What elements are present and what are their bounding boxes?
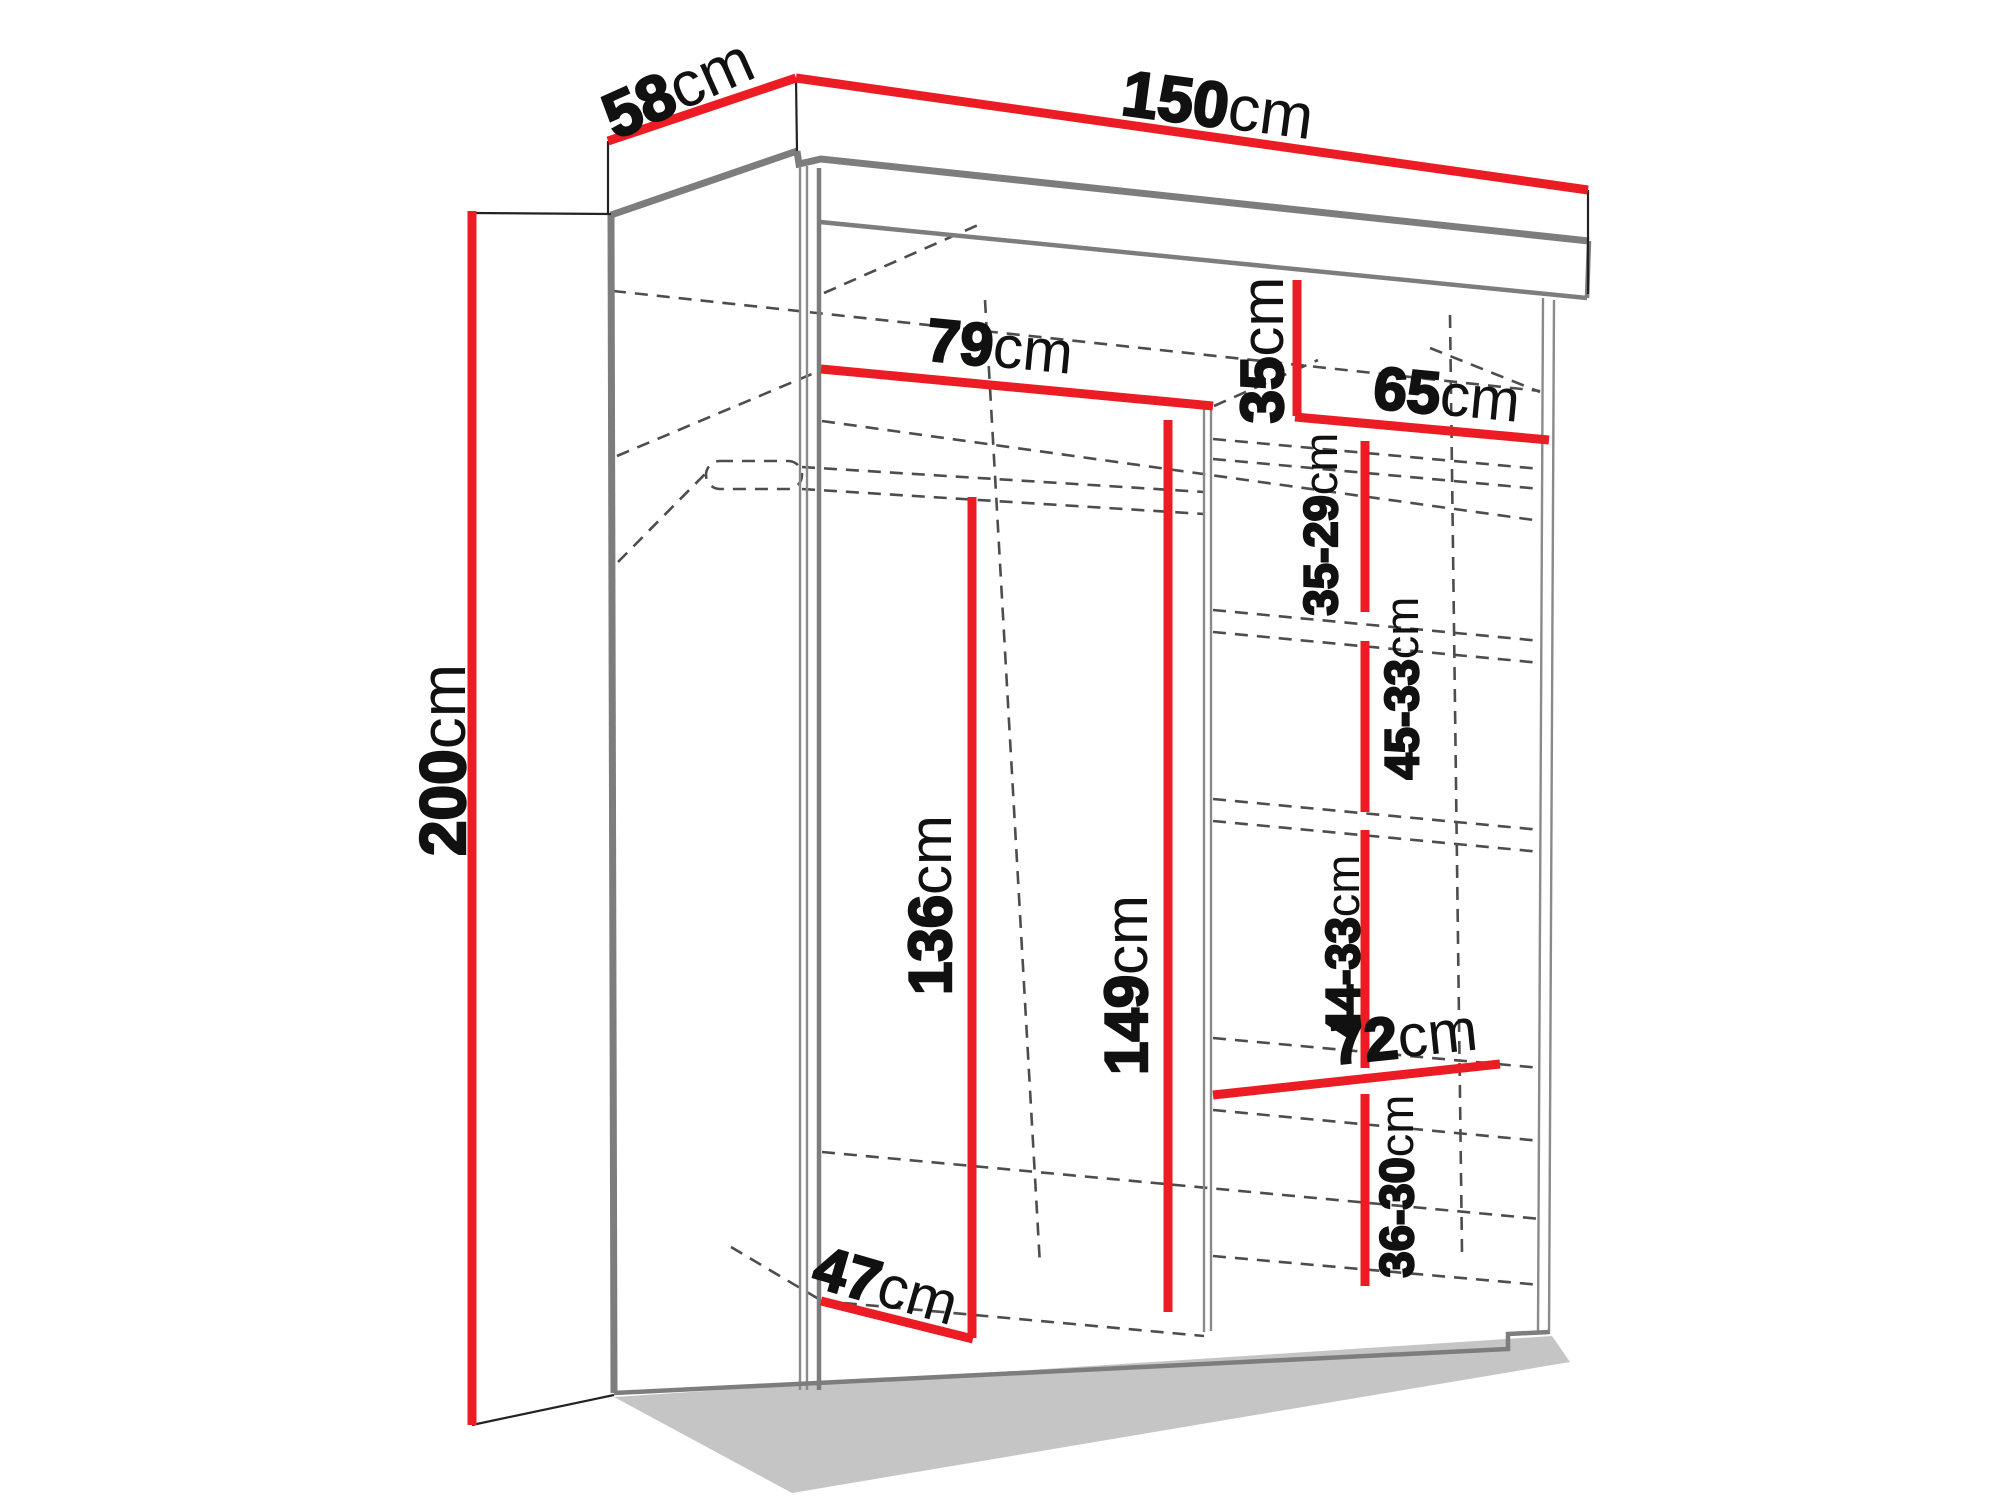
floor-shadow — [614, 1336, 1570, 1493]
back-left-corner-dashed — [985, 300, 1040, 1265]
shelf-3-under-dashed — [1213, 821, 1541, 852]
top-shelf-back-edge-dashed — [822, 421, 1541, 521]
connector-apex-drop — [796, 78, 797, 151]
right-panel-front-edge-inner — [1538, 298, 1543, 1331]
hanging-rail-top-dashed — [802, 467, 1204, 492]
connector-top-left — [472, 213, 611, 214]
label-height-200: 200cm — [407, 664, 479, 856]
label-width-150: 150cm — [1118, 57, 1318, 153]
connector-bottom-left — [472, 1395, 614, 1425]
label-gap-36-30: 36-30cm — [1370, 1095, 1423, 1278]
crown-bottom-edge — [820, 222, 1587, 298]
label-left-width-79: 79cm — [924, 306, 1076, 387]
left-panel-top-edge — [611, 151, 797, 215]
label-hang-136: 136cm — [897, 815, 964, 995]
label-top-shelf-35: 35cm — [1229, 277, 1296, 424]
back-right-corner-dashed — [1450, 315, 1462, 1252]
left-top-depth-dashed — [824, 222, 985, 293]
label-divider-149: 149cm — [1093, 895, 1160, 1075]
label-gap-45-33: 45-33cm — [1375, 597, 1428, 780]
left-panel-rail-trace-dashed — [618, 472, 707, 562]
right-panel-front-edge-outer — [1549, 300, 1554, 1334]
left-panel-front-edge — [611, 215, 614, 1393]
left-panel-shelf-trace-dashed — [617, 371, 819, 456]
plinth-top-dashed — [822, 1152, 1541, 1219]
diagram-canvas: 58cm 150cm 200cm 79cm 35cm 65cm 35-29cm … — [0, 0, 2000, 1500]
hanging-rail — [706, 461, 802, 489]
label-depth-58: 58cm — [592, 23, 764, 152]
shelf-1-under-dashed — [1213, 459, 1541, 489]
crown-top-edge — [797, 151, 1589, 241]
cabinet-structure-group — [611, 151, 1589, 1393]
dimension-labels-group: 58cm 150cm 200cm 79cm 35cm 65cm 35-29cm … — [407, 23, 1523, 1337]
wardrobe-dimension-diagram: 58cm 150cm 200cm 79cm 35cm 65cm 35-29cm … — [0, 0, 2000, 1500]
hanging-rail-bottom-dashed — [802, 489, 1204, 514]
label-right-width-65: 65cm — [1371, 354, 1523, 435]
label-gap-35-29: 35-29cm — [1294, 433, 1347, 616]
